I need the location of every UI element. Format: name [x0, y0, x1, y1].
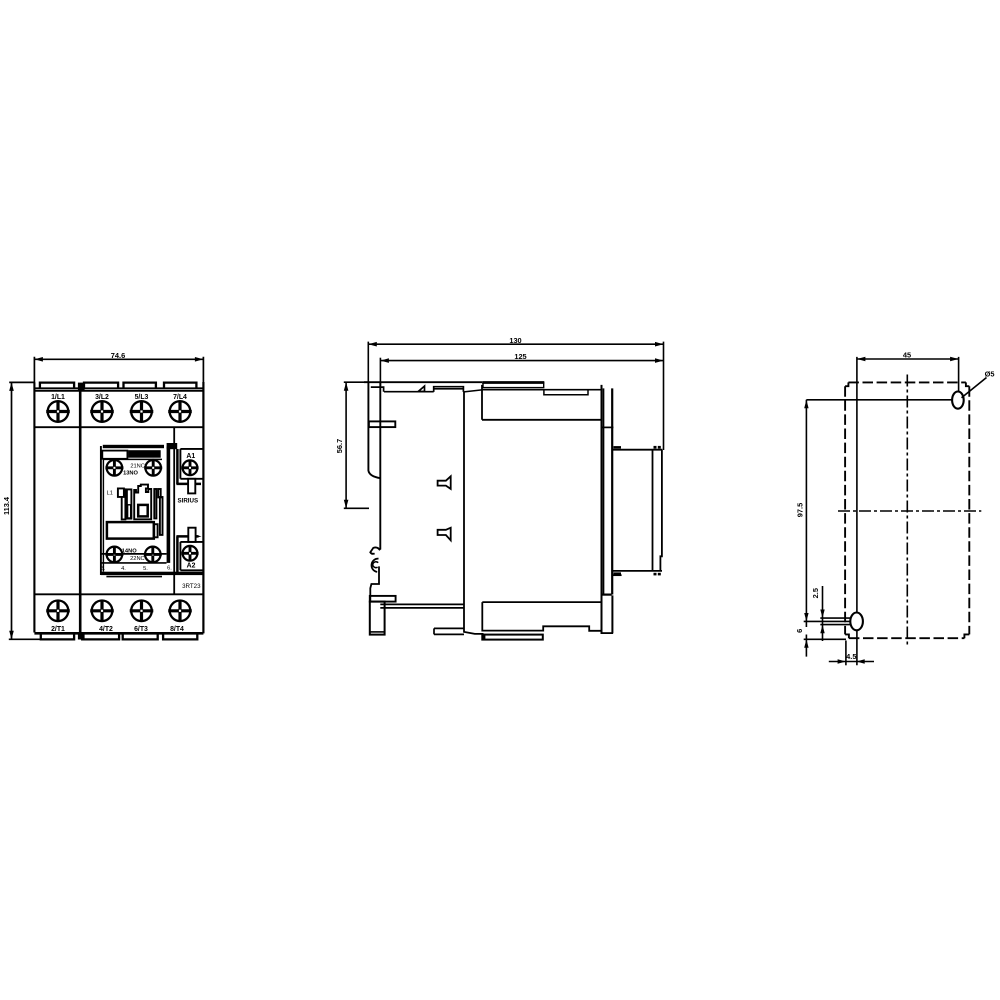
- svg-text:74.6: 74.6: [111, 351, 125, 360]
- svg-text:L1: L1: [107, 491, 113, 497]
- svg-text:130: 130: [509, 336, 521, 345]
- svg-text:6.: 6.: [167, 566, 172, 572]
- svg-text:A2: A2: [187, 563, 196, 570]
- svg-text:22NC: 22NC: [130, 556, 145, 562]
- svg-text:2.5: 2.5: [811, 588, 820, 598]
- svg-text:7/L4: 7/L4: [173, 394, 187, 401]
- svg-text:4.5: 4.5: [846, 652, 856, 661]
- svg-text:5.: 5.: [143, 566, 148, 572]
- svg-text:3.: 3.: [101, 566, 106, 572]
- svg-text:3/L2: 3/L2: [95, 394, 109, 401]
- svg-text:A1: A1: [186, 453, 195, 460]
- svg-text:Ø5: Ø5: [985, 370, 995, 379]
- svg-text:21NC: 21NC: [130, 463, 145, 469]
- svg-text:8/T4: 8/T4: [170, 626, 184, 633]
- svg-text:45: 45: [903, 351, 911, 360]
- svg-text:125: 125: [514, 352, 526, 361]
- svg-text:3RT23: 3RT23: [182, 583, 201, 590]
- svg-text:SIRIUS: SIRIUS: [177, 497, 198, 504]
- svg-text:6/T3: 6/T3: [134, 626, 148, 633]
- svg-text:6: 6: [795, 629, 804, 633]
- svg-text:2/T1: 2/T1: [51, 626, 65, 633]
- svg-text:97.5: 97.5: [796, 503, 805, 517]
- svg-text:13NO: 13NO: [123, 471, 138, 477]
- svg-text:1/L1: 1/L1: [51, 394, 65, 401]
- svg-text:5/L3: 5/L3: [135, 394, 149, 401]
- svg-text:4.: 4.: [121, 566, 126, 572]
- svg-text:4/T2: 4/T2: [99, 626, 113, 633]
- svg-text:113.4: 113.4: [2, 496, 11, 515]
- svg-text:56.7: 56.7: [335, 439, 344, 453]
- svg-text:SIEMENS: SIEMENS: [132, 452, 156, 458]
